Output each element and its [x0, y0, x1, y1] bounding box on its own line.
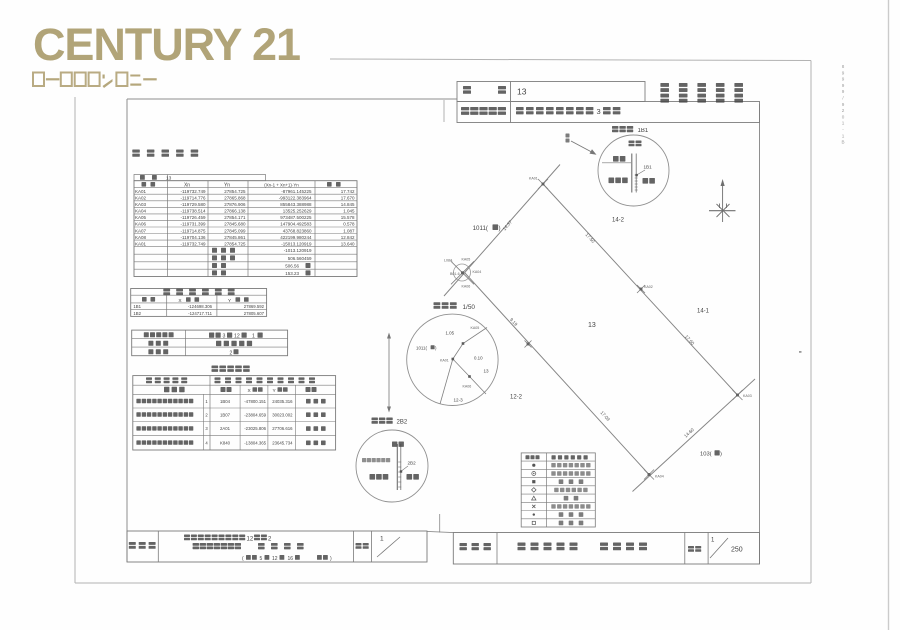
svg-text:14.37: 14.37 [502, 219, 514, 231]
svg-text:-119732.749: -119732.749 [181, 241, 206, 246]
svg-text:Xn: Xn [184, 182, 190, 188]
svg-text:-119729.580: -119729.580 [181, 202, 206, 207]
svg-text:16: 16 [288, 556, 294, 562]
svg-text:KA01: KA01 [135, 189, 147, 194]
svg-text:13: 13 [484, 369, 490, 374]
svg-text:43768.823860: 43768.823860 [283, 228, 312, 233]
svg-text:-119714.776: -119714.776 [181, 196, 206, 201]
svg-text:17.742: 17.742 [341, 189, 355, 194]
svg-text:B: B [841, 140, 844, 145]
svg-text:3: 3 [223, 334, 226, 340]
svg-text:9: 9 [842, 70, 845, 75]
svg-text:30023.002: 30023.002 [272, 412, 293, 417]
svg-text:1B1: 1B1 [638, 128, 649, 134]
svg-text:1: 1 [711, 538, 715, 544]
svg-text:KA07: KA07 [135, 228, 147, 233]
svg-text:K840: K840 [220, 440, 231, 445]
svg-text:27865.868: 27865.868 [224, 196, 246, 201]
svg-text:103(: 103( [700, 452, 712, 458]
svg-text:13: 13 [588, 322, 596, 329]
svg-text:1.05: 1.05 [446, 331, 455, 336]
svg-text:153.23: 153.23 [285, 271, 299, 276]
svg-text:1: 1 [252, 334, 255, 340]
svg-text:23645.734: 23645.734 [272, 440, 293, 445]
svg-text:KA04: KA04 [655, 475, 664, 479]
svg-text:13: 13 [166, 176, 172, 182]
svg-text:17.50: 17.50 [584, 232, 596, 244]
svg-text:1011(: 1011( [473, 225, 489, 232]
svg-text:-47800.151: -47800.151 [244, 399, 266, 404]
svg-text:9: 9 [842, 77, 845, 82]
svg-text:17.60: 17.60 [684, 334, 696, 346]
svg-text:17.670: 17.670 [341, 196, 355, 201]
svg-text:506.560459: 506.560459 [288, 256, 312, 261]
svg-text:12-2: 12-2 [510, 395, 523, 401]
svg-text:24035.316: 24035.316 [272, 399, 293, 404]
svg-text:KA05: KA05 [135, 215, 147, 220]
svg-text:1: 1 [842, 133, 845, 138]
svg-text:5: 5 [260, 556, 263, 562]
svg-text:0.10: 0.10 [474, 356, 483, 361]
svg-text:-119714.875: -119714.875 [181, 228, 206, 233]
svg-text:12: 12 [272, 556, 278, 562]
svg-text:KA06: KA06 [463, 385, 472, 389]
svg-text:14-2: 14-2 [612, 218, 625, 224]
svg-text:0.578: 0.578 [343, 222, 355, 227]
svg-text:27869.592: 27869.592 [244, 304, 265, 309]
svg-text:KA05: KA05 [471, 326, 480, 330]
svg-text:855843.388988: 855843.388988 [280, 202, 312, 207]
svg-text:27805.607: 27805.607 [244, 311, 265, 316]
svg-text:-23025.806: -23025.806 [244, 426, 266, 431]
svg-text:-1013.120919: -1013.120919 [284, 248, 312, 253]
svg-text:1B1: 1B1 [644, 165, 653, 170]
svg-text:12.842: 12.842 [341, 235, 355, 240]
svg-text:1.087: 1.087 [343, 228, 355, 233]
svg-text:506.56: 506.56 [285, 263, 299, 268]
svg-text:14.845: 14.845 [341, 202, 355, 207]
svg-text:13: 13 [517, 87, 527, 97]
svg-text:27845.861: 27845.861 [224, 235, 246, 240]
svg-text:KA04: KA04 [473, 270, 482, 274]
svg-text:1B2: 1B2 [133, 311, 141, 316]
svg-text:12-3: 12-3 [454, 398, 464, 403]
svg-text:15.578: 15.578 [341, 215, 355, 220]
svg-text:KA01: KA01 [529, 177, 538, 181]
svg-text:-124717.711: -124717.711 [188, 311, 212, 316]
svg-text:12: 12 [234, 334, 240, 340]
svg-text:422199.980244: 422199.980244 [280, 235, 312, 240]
svg-text:1: 1 [205, 399, 208, 404]
svg-text:27854.171: 27854.171 [224, 215, 246, 220]
svg-text:CENTURY 21: CENTURY 21 [33, 19, 301, 70]
svg-text:-87961.145225: -87961.145225 [281, 189, 312, 194]
svg-text:-993122.383964: -993122.383964 [279, 196, 312, 201]
svg-text:-119704.136: -119704.136 [181, 235, 206, 240]
svg-text:-15013.120919: -15013.120919 [281, 241, 312, 246]
svg-text:250: 250 [731, 547, 743, 554]
svg-text:): ) [720, 452, 722, 458]
svg-text:1B1: 1B1 [133, 304, 141, 309]
svg-text:2: 2 [205, 412, 208, 417]
svg-text:KA06: KA06 [462, 285, 471, 289]
svg-text:KA01: KA01 [135, 241, 147, 246]
svg-text:KA02: KA02 [135, 196, 147, 201]
svg-text:KA04: KA04 [135, 209, 147, 214]
svg-text:L08A: L08A [444, 259, 453, 263]
svg-text:KA03: KA03 [743, 394, 752, 398]
svg-text:9: 9 [842, 89, 845, 94]
svg-text:-: - [842, 127, 844, 132]
svg-text:13525.252629: 13525.252629 [283, 209, 312, 214]
svg-text:): ) [435, 346, 437, 351]
svg-text:9: 9 [842, 83, 845, 88]
svg-text:-119732.749: -119732.749 [181, 189, 206, 194]
svg-text:973487.500225: 973487.500225 [280, 215, 312, 220]
svg-text:1: 1 [842, 121, 845, 126]
svg-text:Yn: Yn [224, 182, 230, 188]
svg-text:3: 3 [597, 107, 601, 116]
svg-text:KA03: KA03 [135, 202, 147, 207]
svg-text:KA02: KA02 [644, 285, 653, 289]
svg-text:27866.138: 27866.138 [224, 209, 246, 214]
svg-text:0: 0 [842, 114, 845, 119]
svg-text:14-1: 14-1 [697, 309, 710, 315]
svg-text:2B2: 2B2 [397, 420, 408, 426]
svg-text:9: 9 [842, 102, 845, 107]
svg-text:27845.099: 27845.099 [224, 228, 246, 233]
svg-text:1B07: 1B07 [220, 412, 231, 417]
svg-text:27876.906: 27876.906 [224, 202, 246, 207]
svg-text:27706.616: 27706.616 [272, 426, 293, 431]
svg-text:2: 2 [268, 537, 272, 543]
svg-text:KA06: KA06 [135, 222, 147, 227]
svg-text:): ) [499, 225, 501, 232]
svg-text:2B2: 2B2 [408, 461, 417, 466]
svg-text:1011(: 1011( [416, 346, 427, 351]
svg-text:12: 12 [247, 537, 254, 543]
svg-text:27854.725: 27854.725 [224, 189, 246, 194]
svg-text:147904.492583: 147904.492583 [280, 222, 312, 227]
svg-text:KA01: KA01 [440, 359, 449, 363]
svg-text:): ) [330, 556, 332, 562]
svg-text:-124698.306: -124698.306 [188, 304, 213, 309]
svg-text:B01-6: B01-6 [450, 272, 460, 276]
svg-text:2A01: 2A01 [220, 426, 231, 431]
svg-text:3: 3 [205, 426, 208, 431]
svg-text:-119731.399: -119731.399 [181, 222, 206, 227]
svg-text:Y: Y [273, 388, 277, 394]
svg-text:1: 1 [380, 536, 384, 543]
svg-text:1.045: 1.045 [343, 209, 355, 214]
svg-text:27845.680: 27845.680 [224, 222, 246, 227]
svg-text:-13804.365: -13804.365 [244, 440, 266, 445]
svg-text:27854.725: 27854.725 [224, 241, 246, 246]
svg-text:KA08: KA08 [135, 235, 147, 240]
svg-text:1B04: 1B04 [220, 399, 231, 404]
svg-text:17.09: 17.09 [599, 410, 611, 422]
svg-text:14.60: 14.60 [683, 427, 695, 439]
svg-text:4: 4 [205, 440, 208, 445]
svg-text:1/50: 1/50 [463, 304, 476, 311]
svg-text:8: 8 [842, 64, 845, 69]
svg-text:-119726.459: -119726.459 [181, 215, 206, 220]
svg-text:-119738.514: -119738.514 [181, 209, 206, 214]
svg-text:KA05: KA05 [462, 258, 471, 262]
svg-text:/: / [842, 96, 844, 101]
svg-text:2: 2 [230, 350, 233, 356]
svg-text:2: 2 [842, 108, 845, 113]
svg-text:13.640: 13.640 [341, 241, 355, 246]
svg-text:(: ( [242, 556, 244, 562]
svg-text:(Xn-1 + Xn+1)·Yn: (Xn-1 + Xn+1)·Yn [264, 182, 299, 187]
svg-text:-23804.659: -23804.659 [244, 412, 266, 417]
svg-text:X: X [248, 388, 252, 394]
